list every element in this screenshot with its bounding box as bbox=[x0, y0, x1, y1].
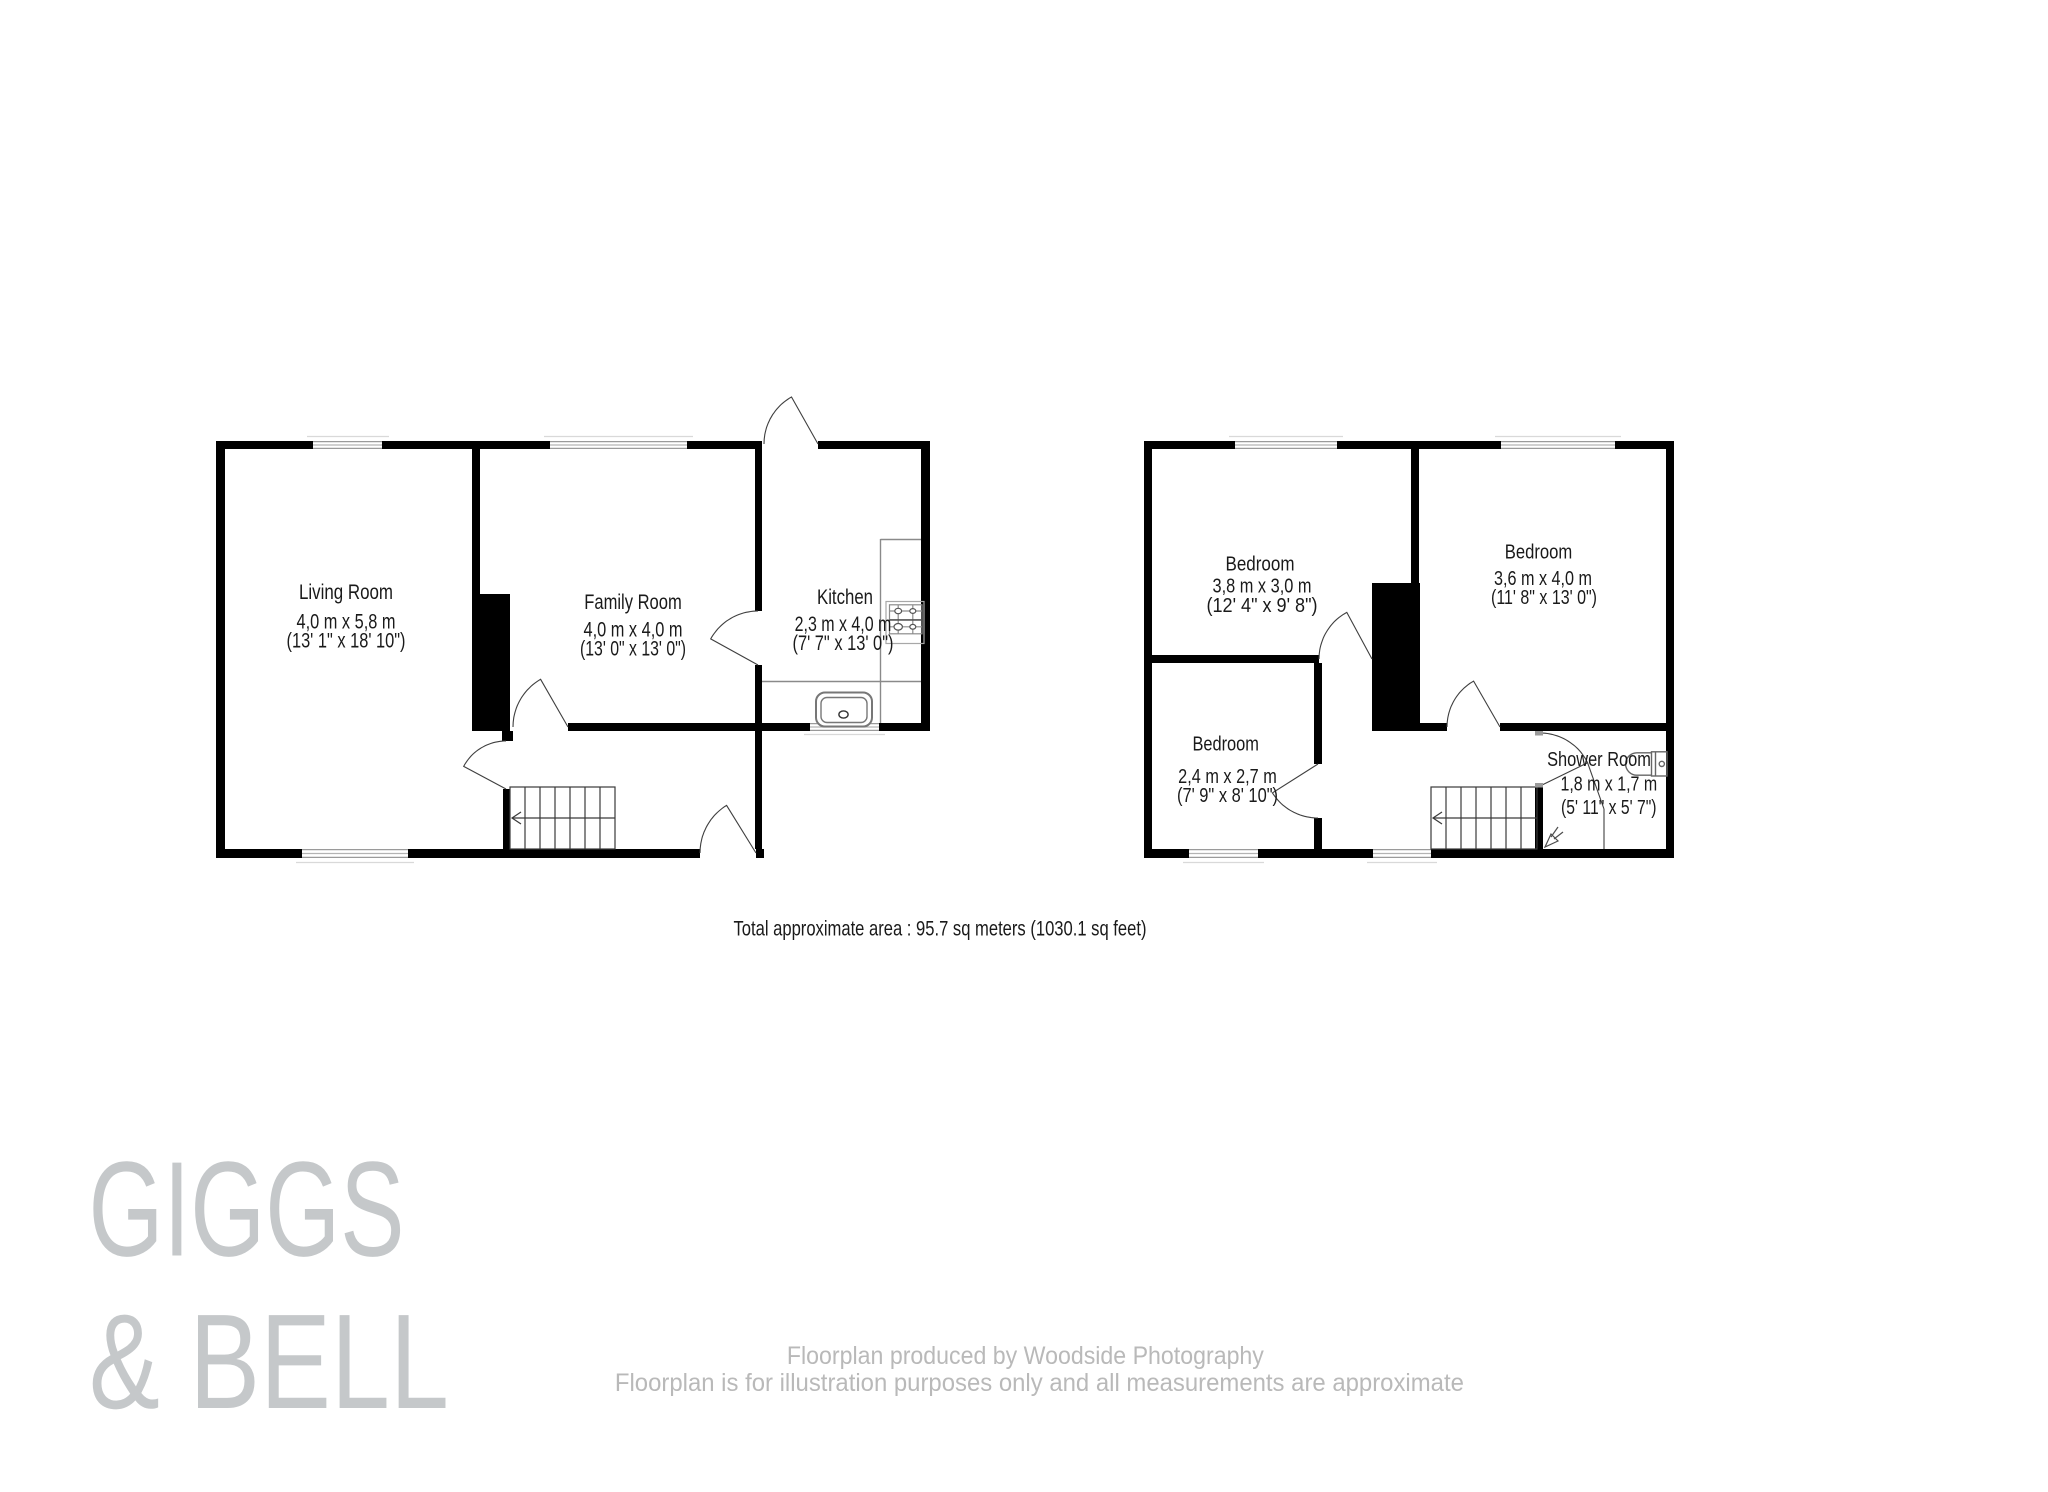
svg-text:& BELL: & BELL bbox=[89, 1286, 449, 1437]
svg-text:Bedroom: Bedroom bbox=[1226, 554, 1295, 576]
svg-text:Living Room: Living Room bbox=[299, 581, 393, 604]
svg-text:GIGGS: GIGGS bbox=[89, 1134, 405, 1285]
svg-text:Shower Room: Shower Room bbox=[1547, 749, 1651, 771]
svg-text:Total approximate area : 95.7: Total approximate area : 95.7 sq meters … bbox=[734, 917, 1147, 941]
svg-text:Floorplan is for illustration: Floorplan is for illustration purposes o… bbox=[615, 1369, 1464, 1397]
svg-text:Kitchen: Kitchen bbox=[817, 586, 873, 609]
svg-text:(7' 9" x 8' 10"): (7' 9" x 8' 10") bbox=[1177, 785, 1278, 807]
svg-text:Bedroom: Bedroom bbox=[1192, 733, 1259, 755]
svg-text:(13' 1" x 18' 10"): (13' 1" x 18' 10") bbox=[287, 630, 406, 653]
svg-text:1,8 m x 1,7 m: 1,8 m x 1,7 m bbox=[1560, 774, 1657, 796]
svg-text:(7' 7" x 13' 0"): (7' 7" x 13' 0") bbox=[793, 632, 894, 655]
svg-text:(5' 11" x 5' 7"): (5' 11" x 5' 7") bbox=[1561, 797, 1657, 819]
svg-text:Floorplan produced by Woodside: Floorplan produced by Woodside Photograp… bbox=[787, 1342, 1264, 1370]
svg-text:(12' 4" x 9' 8"): (12' 4" x 9' 8") bbox=[1207, 595, 1318, 617]
svg-text:Bedroom: Bedroom bbox=[1505, 541, 1573, 563]
svg-text:Family Room: Family Room bbox=[584, 591, 682, 614]
svg-text:(11' 8" x 13' 0"): (11' 8" x 13' 0") bbox=[1491, 587, 1597, 609]
svg-text:(13' 0" x 13' 0"): (13' 0" x 13' 0") bbox=[580, 638, 686, 661]
